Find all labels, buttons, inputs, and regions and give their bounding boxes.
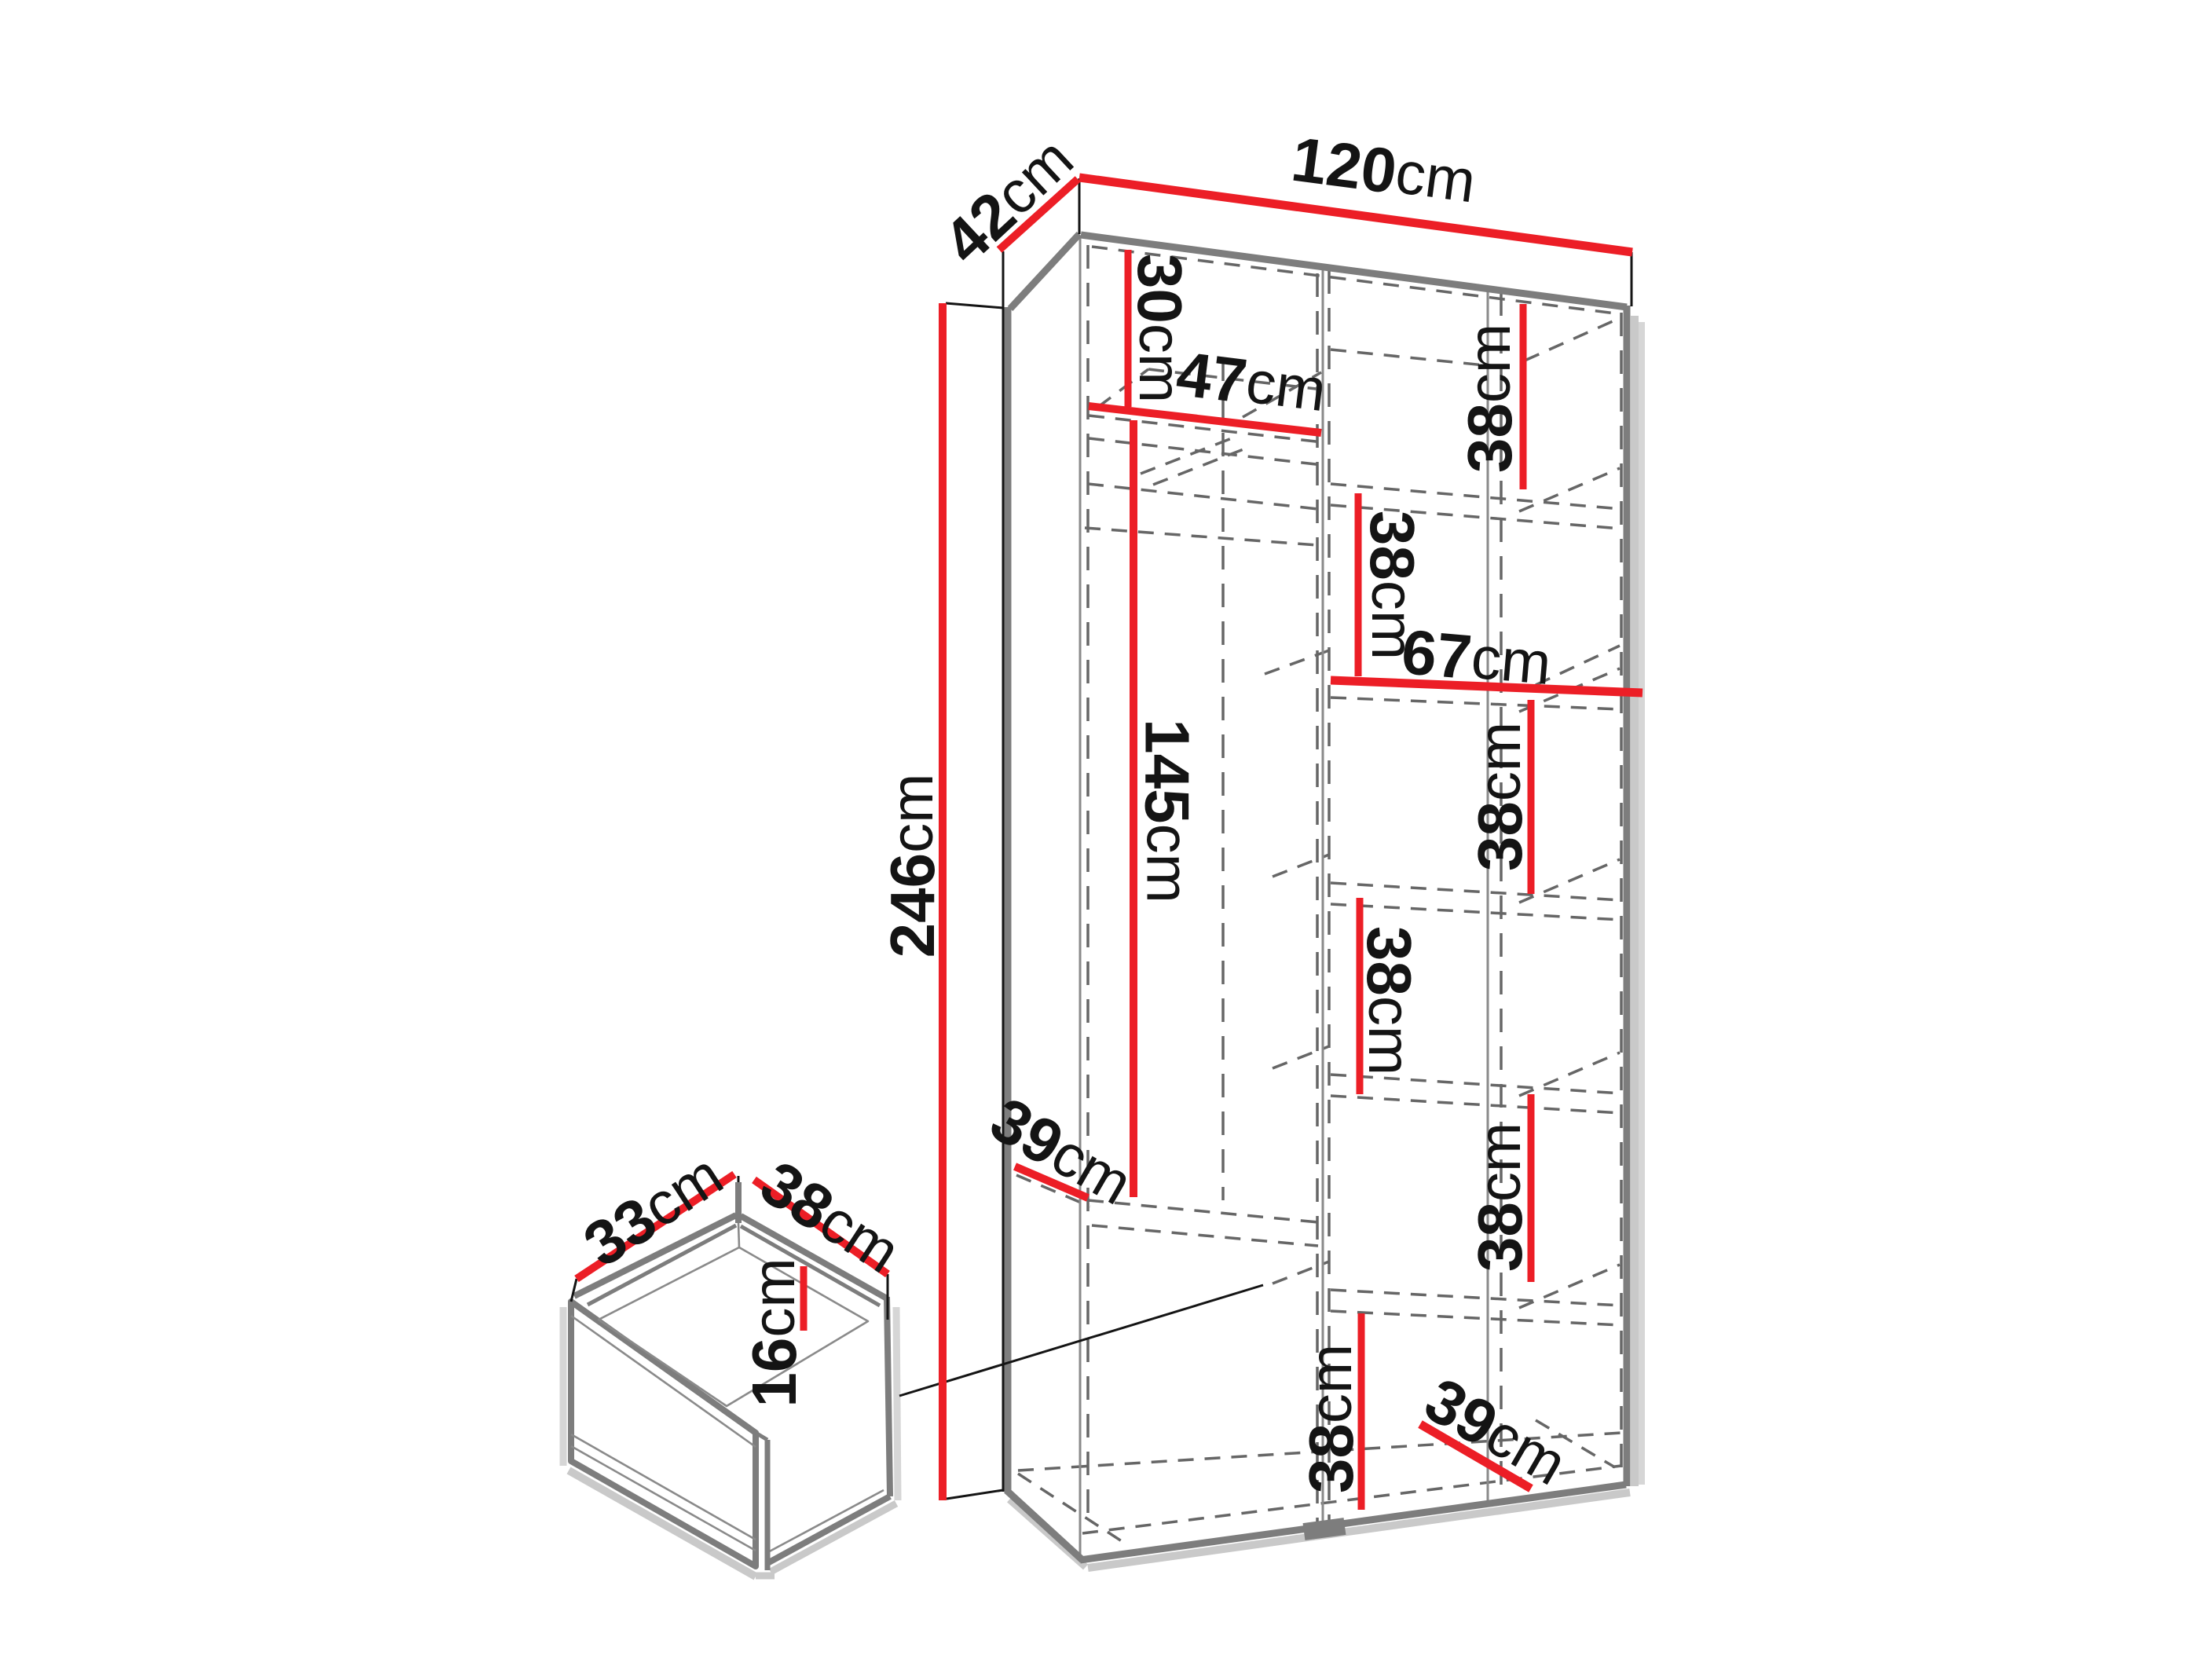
- svg-text:38cm: 38cm: [1465, 722, 1535, 871]
- svg-text:38cm: 38cm: [1465, 1122, 1535, 1272]
- svg-text:38cm: 38cm: [1355, 926, 1425, 1075]
- svg-text:38cm: 38cm: [1296, 1344, 1366, 1493]
- svg-text:67cm: 67cm: [1399, 616, 1554, 698]
- svg-text:16cm: 16cm: [739, 1258, 809, 1407]
- svg-text:246cm: 246cm: [877, 774, 947, 958]
- svg-text:145cm: 145cm: [1133, 719, 1203, 903]
- svg-text:38cm: 38cm: [1455, 324, 1525, 473]
